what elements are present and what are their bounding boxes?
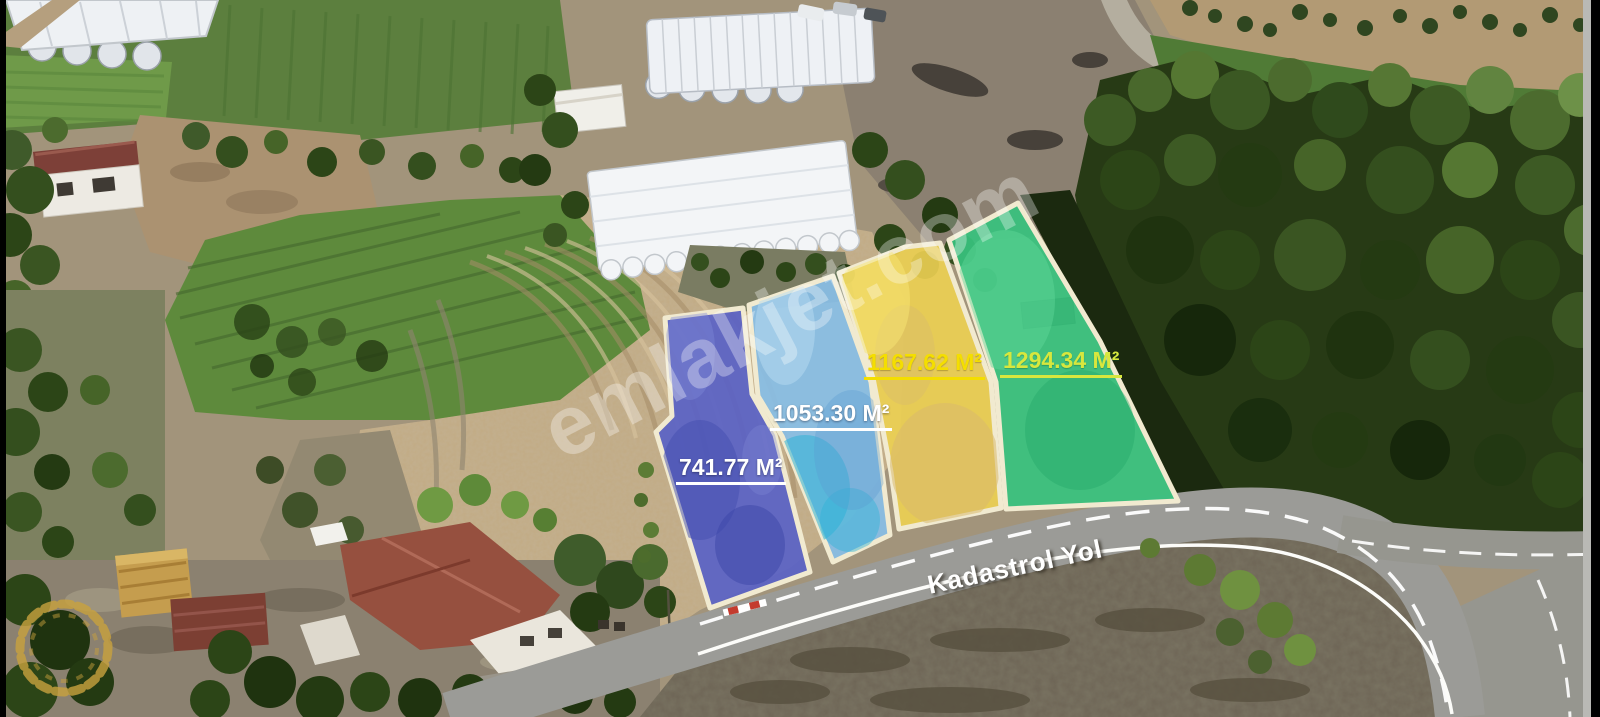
frame-border-right: [1591, 0, 1600, 717]
frame-border-left: [0, 0, 6, 717]
left-edge-vegetation: [0, 290, 165, 580]
listing-photo: emlakjet.com 741.77 M² 1053.30 M² 1167.6…: [0, 0, 1600, 717]
aerial-photo: [0, 0, 1600, 717]
